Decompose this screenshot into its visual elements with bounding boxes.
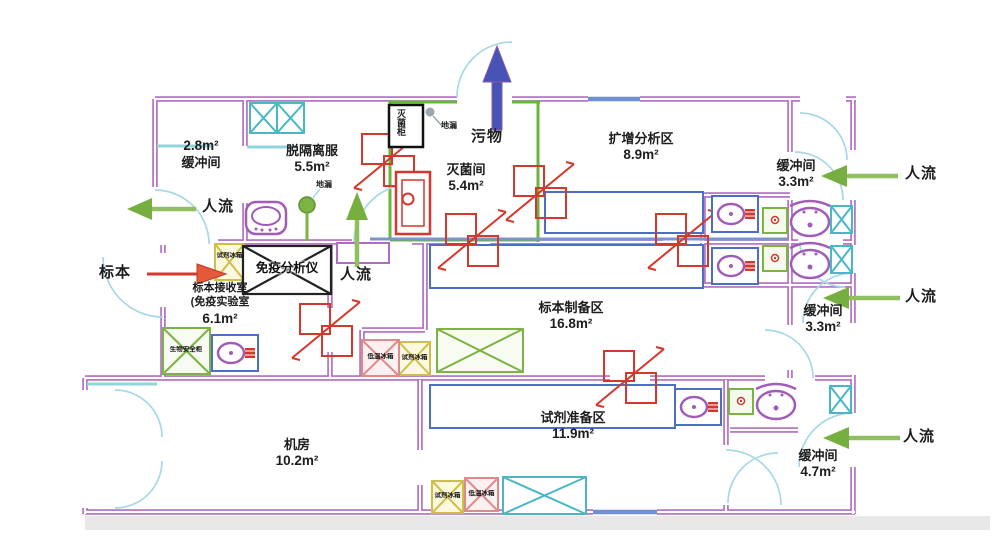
corridor-niche	[337, 243, 389, 263]
room-area: 3.3m²	[765, 174, 827, 191]
reagent-fridge-label: 试剂冰箱	[431, 492, 464, 500]
people-flow-label: 人流	[202, 198, 234, 217]
people-flow-label: 人流	[903, 428, 935, 447]
waste-flow-label: 污物	[471, 128, 503, 147]
room-name: 脱隔离服	[266, 143, 358, 159]
room-name: 试剂准备区	[512, 410, 634, 426]
washbasin-symbol	[790, 201, 830, 236]
room-area: 5.5m²	[266, 159, 358, 176]
room-name: 标本制备区	[518, 300, 624, 316]
room-name-2: (免疫实验室	[172, 295, 268, 309]
room-label-machine-room: 机房 10.2m²	[255, 437, 339, 470]
room-name: 标本接收室	[172, 281, 268, 295]
room-label-reagent-prep: 试剂准备区 11.9m²	[512, 410, 634, 443]
room-label-buffer-tr: 缓冲间 3.3m²	[765, 158, 827, 191]
biosafety-cabinet-label: 生物安全柜	[161, 346, 211, 354]
room-label-buffer-tl: 2.8m² 缓冲间	[165, 138, 237, 171]
room-label-buffer-mr: 缓冲间 3.3m²	[792, 303, 854, 336]
reagent-fridge-label: 试剂冰箱	[398, 354, 431, 362]
toilet-symbol	[246, 202, 286, 234]
floor-strip	[85, 516, 990, 530]
room-name: 灭菌间	[428, 162, 504, 178]
pass-through-symbol	[292, 300, 360, 360]
room-name: 缓冲间	[786, 448, 850, 464]
room-label-specimen-prep: 标本制备区 16.8m²	[518, 300, 624, 333]
sterilizer-cabinet-symbol	[389, 105, 423, 147]
freezer-label: 低温冰箱	[464, 490, 499, 498]
floorplan-drawing	[0, 0, 1000, 538]
floor-drain-label: 地漏	[441, 121, 457, 131]
room-label-amplification: 扩增分析区 8.9m²	[588, 131, 694, 164]
room-label-sterilization: 灭菌间 5.4m²	[428, 162, 504, 195]
people-flow-label: 人流	[905, 165, 937, 184]
floor-drain-symbol	[299, 189, 320, 241]
room-name: 缓冲间	[165, 155, 237, 171]
washbasin-symbol	[756, 384, 796, 419]
room-name: 机房	[255, 437, 339, 453]
room-name: 扩增分析区	[588, 131, 694, 147]
room-area: 16.8m²	[518, 316, 624, 333]
sterilizer-cabinet-label: 灭菌柜	[396, 109, 405, 136]
autoclave-symbol	[396, 172, 430, 234]
immuno-analyzer-label: 免疫分析仪	[243, 261, 331, 277]
people-flow-label: 人流	[340, 266, 372, 285]
specimen-flow-label: 标本	[99, 264, 131, 283]
room-area: 2.8m²	[165, 138, 237, 155]
room-area: 3.3m²	[792, 319, 854, 336]
room-area: 8.9m²	[588, 147, 694, 164]
washbasin-symbol	[790, 243, 830, 278]
floor-drain-label: 地漏	[316, 180, 332, 190]
room-label-buffer-br: 缓冲间 4.7m²	[786, 448, 850, 481]
room-name: 缓冲间	[792, 303, 854, 319]
floorplan-canvas: 2.8m² 缓冲间 脱隔离服 5.5m² 灭菌间 5.4m² 扩增分析区 8.9…	[0, 0, 1000, 538]
room-label-specimen-receiving: 标本接收室 (免疫实验室 6.1m²	[172, 281, 268, 327]
room-area: 10.2m²	[255, 453, 339, 470]
room-area: 11.9m²	[512, 426, 634, 443]
room-name: 缓冲间	[765, 158, 827, 174]
room-area: 5.4m²	[428, 178, 504, 195]
reagent-fridge-label: 试剂冰箱	[214, 252, 245, 260]
waste-flow-arrow	[483, 46, 511, 130]
room-area: 6.1m²	[172, 310, 268, 328]
freezer-label: 低温冰箱	[361, 353, 400, 361]
room-area: 4.7m²	[786, 464, 850, 481]
room-label-undressing: 脱隔离服 5.5m²	[266, 143, 358, 176]
people-flow-label: 人流	[905, 288, 937, 307]
